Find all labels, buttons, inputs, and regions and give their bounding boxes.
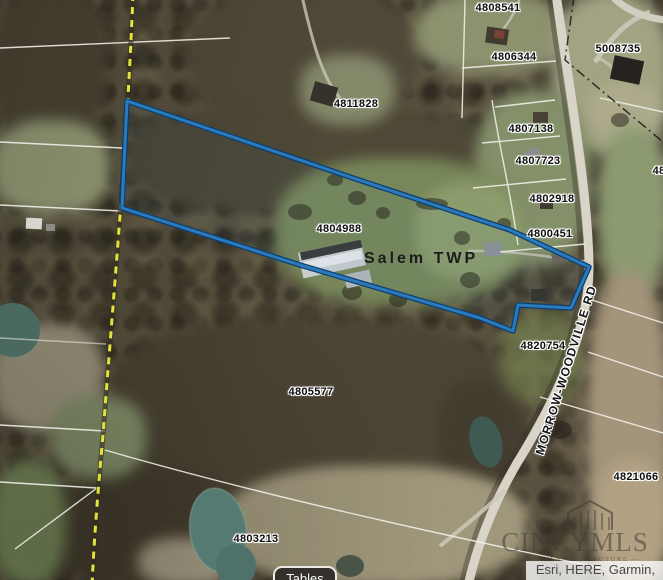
map-attribution: Esri, HERE, Garmin, [526, 561, 663, 580]
township-label: Salem TWP [364, 250, 478, 268]
watermark-top-row: THE [484, 497, 663, 531]
parcel-label: 4820754 [521, 340, 566, 352]
watermark-name: CINCYMLS [484, 529, 663, 555]
parcel-label: 5008735 [596, 43, 641, 55]
parcel-label: 4807723 [516, 155, 561, 167]
parcel-label: 4803213 [234, 533, 279, 545]
cincymls-watermark: THE CINCYMLS — OUR MLS • OUR FUTURE — [484, 497, 663, 563]
parcel-label: 4806344 [492, 51, 537, 63]
aerial-map-canvas[interactable]: 4808541 4806344 5008735 4811828 4807138 … [0, 0, 663, 580]
parcel-label: 4807138 [509, 123, 554, 135]
barn-icon [564, 497, 616, 531]
parcel-label: 4802918 [530, 193, 575, 205]
parcel-label: 4808541 [476, 2, 521, 14]
parcel-label: 4800451 [528, 228, 573, 240]
parcel-label: 4821066 [614, 471, 659, 483]
parcel-label: 4804988 [317, 223, 362, 235]
parcel-label: 4805577 [289, 386, 334, 398]
parcel-label: 4811828 [334, 98, 378, 110]
parcel-label: 48 [653, 165, 663, 177]
tables-button[interactable]: Tables [273, 566, 337, 580]
